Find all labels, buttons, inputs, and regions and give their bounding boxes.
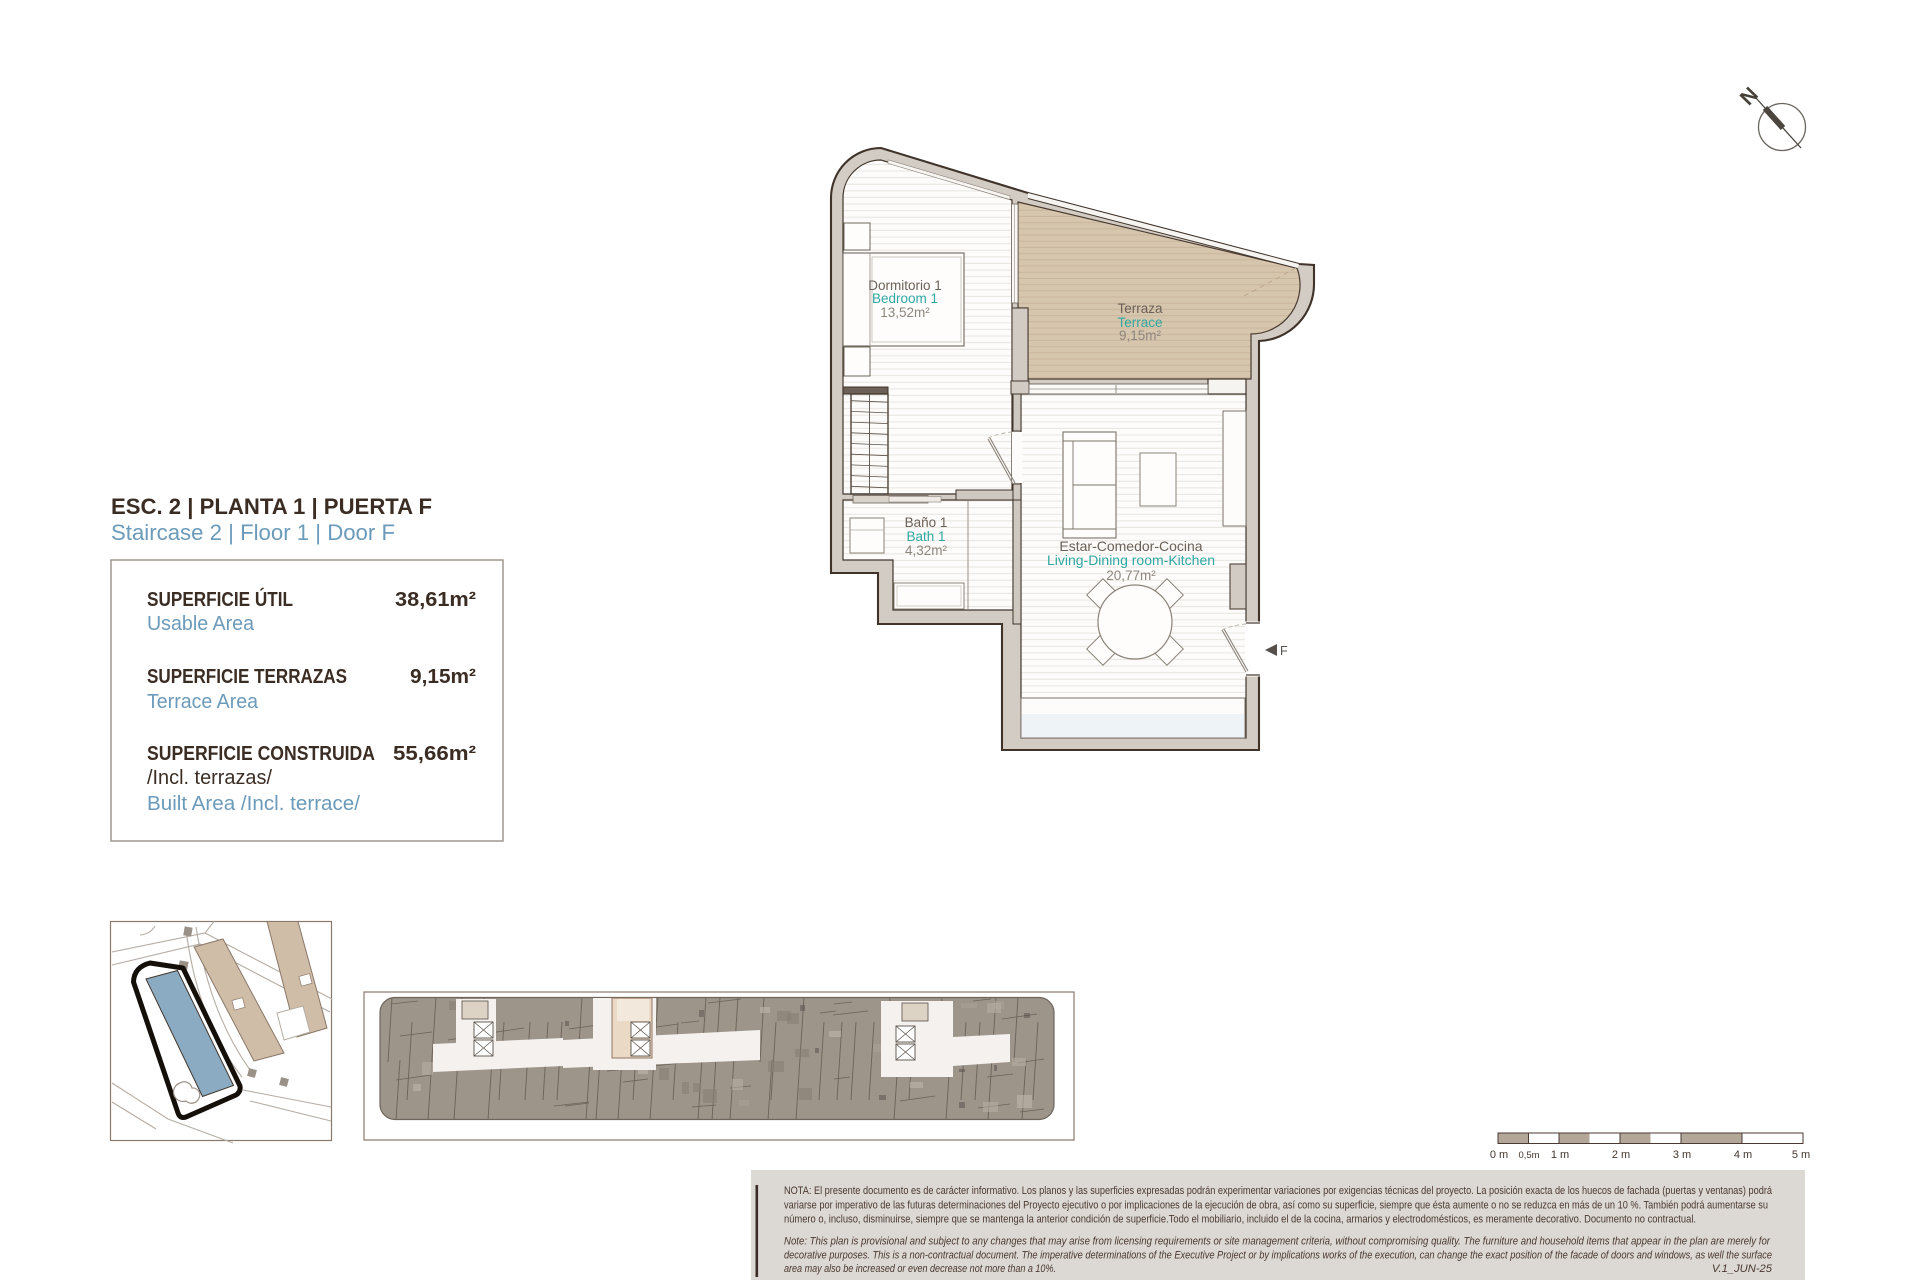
svg-text:13,52m²: 13,52m² xyxy=(880,305,930,320)
svg-text:4 m: 4 m xyxy=(1734,1149,1752,1161)
svg-text:Terrace Area: Terrace Area xyxy=(147,691,259,713)
svg-text:F: F xyxy=(1280,644,1288,658)
svg-text:area may also be increased or: area may also be increased or even decre… xyxy=(784,1263,1056,1275)
svg-text:Note: This plan is provisional: Note: This plan is provisional and subje… xyxy=(784,1235,1771,1247)
svg-text:NOTA: El presente documento e: NOTA: El presente documento es de caráct… xyxy=(784,1185,1773,1197)
svg-text:Bedroom 1: Bedroom 1 xyxy=(872,291,938,306)
svg-text:2 m: 2 m xyxy=(1612,1149,1630,1161)
svg-text:Built Area /Incl. terrace/: Built Area /Incl. terrace/ xyxy=(147,793,360,815)
svg-text:decorative purposes. This is a: decorative purposes. This is a non-contr… xyxy=(784,1250,1772,1262)
svg-text:SUPERFICIE ÚTIL: SUPERFICIE ÚTIL xyxy=(147,587,293,611)
svg-text:V.1_JUN-25: V.1_JUN-25 xyxy=(1712,1263,1773,1275)
svg-text:0,5m: 0,5m xyxy=(1518,1150,1539,1161)
svg-text:Staircase 2 | Floor 1 | Door F: Staircase 2 | Floor 1 | Door F xyxy=(111,520,395,545)
svg-text:3 m: 3 m xyxy=(1673,1149,1691,1161)
svg-text:9,15m²: 9,15m² xyxy=(1119,328,1162,343)
svg-text:SUPERFICIE TERRAZAS: SUPERFICIE TERRAZAS xyxy=(147,665,347,688)
svg-text:5 m: 5 m xyxy=(1792,1149,1810,1161)
svg-text:Usable Area: Usable Area xyxy=(147,613,255,635)
svg-text:número o, incluso, disminuirse: número o, incluso, disminuirse, siempre … xyxy=(784,1214,1696,1226)
svg-text:ESC. 2 | PLANTA 1 | PUERTA F: ESC. 2 | PLANTA 1 | PUERTA F xyxy=(111,494,432,519)
svg-text:Terraza: Terraza xyxy=(1117,301,1163,316)
svg-text:Baño 1: Baño 1 xyxy=(905,515,948,530)
svg-text:variarse por imperativo de las: variarse por imperativo de las futuras d… xyxy=(784,1199,1768,1211)
svg-text:0 m: 0 m xyxy=(1490,1149,1508,1161)
svg-text:Bath 1: Bath 1 xyxy=(906,529,945,544)
svg-text:20,77m²: 20,77m² xyxy=(1106,568,1156,583)
svg-text:1 m: 1 m xyxy=(1551,1149,1569,1161)
svg-text:38,61m²: 38,61m² xyxy=(395,588,476,611)
svg-text:/Incl. terrazas/: /Incl. terrazas/ xyxy=(147,767,272,789)
svg-text:9,15m²: 9,15m² xyxy=(410,665,476,688)
svg-text:55,66m²: 55,66m² xyxy=(393,742,476,765)
svg-text:4,32m²: 4,32m² xyxy=(905,543,948,558)
svg-text:Living-Dining room-Kitchen: Living-Dining room-Kitchen xyxy=(1047,552,1215,568)
svg-text:SUPERFICIE CONSTRUIDA: SUPERFICIE CONSTRUIDA xyxy=(147,742,375,765)
